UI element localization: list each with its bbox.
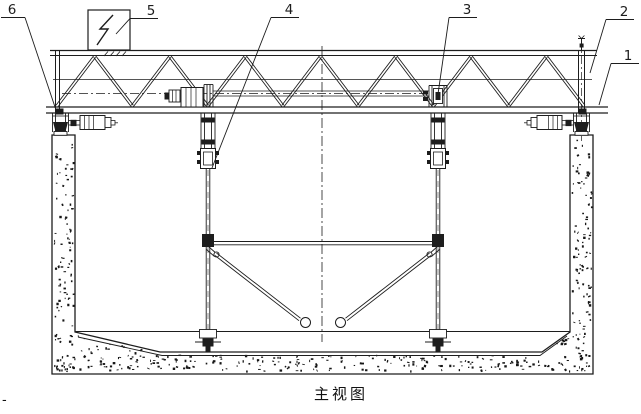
electric-control-box (88, 10, 130, 56)
part-label-6: 6 (1, 2, 56, 110)
drive-shaft (62, 91, 430, 96)
engineering-drawing-canvas: 6 5 4 3 2 1 主视图 - (0, 0, 641, 414)
front-view-drawing: 6 5 4 3 2 1 主视图 - (0, 0, 641, 414)
limit-switch-striker (578, 36, 585, 51)
part-number-2: 2 (620, 4, 629, 20)
part-label-1: 1 (599, 48, 639, 105)
part-label-3: 3 (438, 2, 477, 94)
truss-bridge (46, 51, 608, 114)
part-number-6: 6 (8, 2, 17, 18)
tie-bar (214, 242, 432, 245)
part-number-4: 4 (285, 2, 294, 18)
view-caption: 主视图 (314, 385, 368, 403)
tank-outline (52, 135, 593, 374)
truss-diagonals (56, 56, 585, 107)
concrete-tank (52, 135, 593, 374)
left-hanger-scraper-assembly (195, 114, 311, 353)
part-number-5: 5 (147, 3, 156, 19)
corner-mark: - (2, 393, 7, 408)
part-number-3: 3 (463, 2, 472, 18)
part-number-1: 1 (624, 48, 633, 64)
concrete-stipple-texture (54, 140, 594, 373)
right-hanger-scraper-assembly (336, 114, 452, 353)
drive-gear-motor (165, 85, 214, 108)
